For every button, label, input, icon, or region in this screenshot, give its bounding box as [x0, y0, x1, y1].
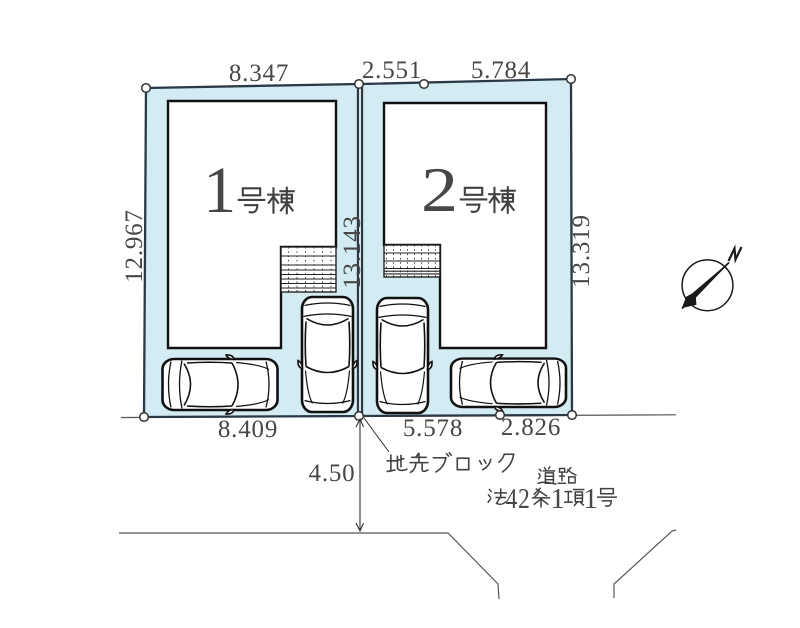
svg-text:13.319: 13.319: [568, 214, 595, 288]
svg-text:8.347: 8.347: [229, 60, 289, 87]
svg-text:42: 42: [506, 483, 531, 515]
svg-text:1: 1: [583, 483, 598, 515]
svg-text:1: 1: [550, 483, 565, 515]
svg-text:1: 1: [203, 154, 237, 227]
svg-text:5.578: 5.578: [403, 415, 463, 442]
svg-text:5.784: 5.784: [471, 57, 531, 84]
svg-text:2.826: 2.826: [501, 414, 561, 441]
svg-text:8.409: 8.409: [218, 416, 278, 443]
svg-text:2: 2: [421, 154, 459, 225]
svg-text:13.143: 13.143: [339, 215, 366, 289]
svg-text:12.967: 12.967: [121, 209, 148, 283]
svg-text:2.551: 2.551: [362, 57, 422, 84]
svg-text:4.50: 4.50: [309, 460, 356, 487]
